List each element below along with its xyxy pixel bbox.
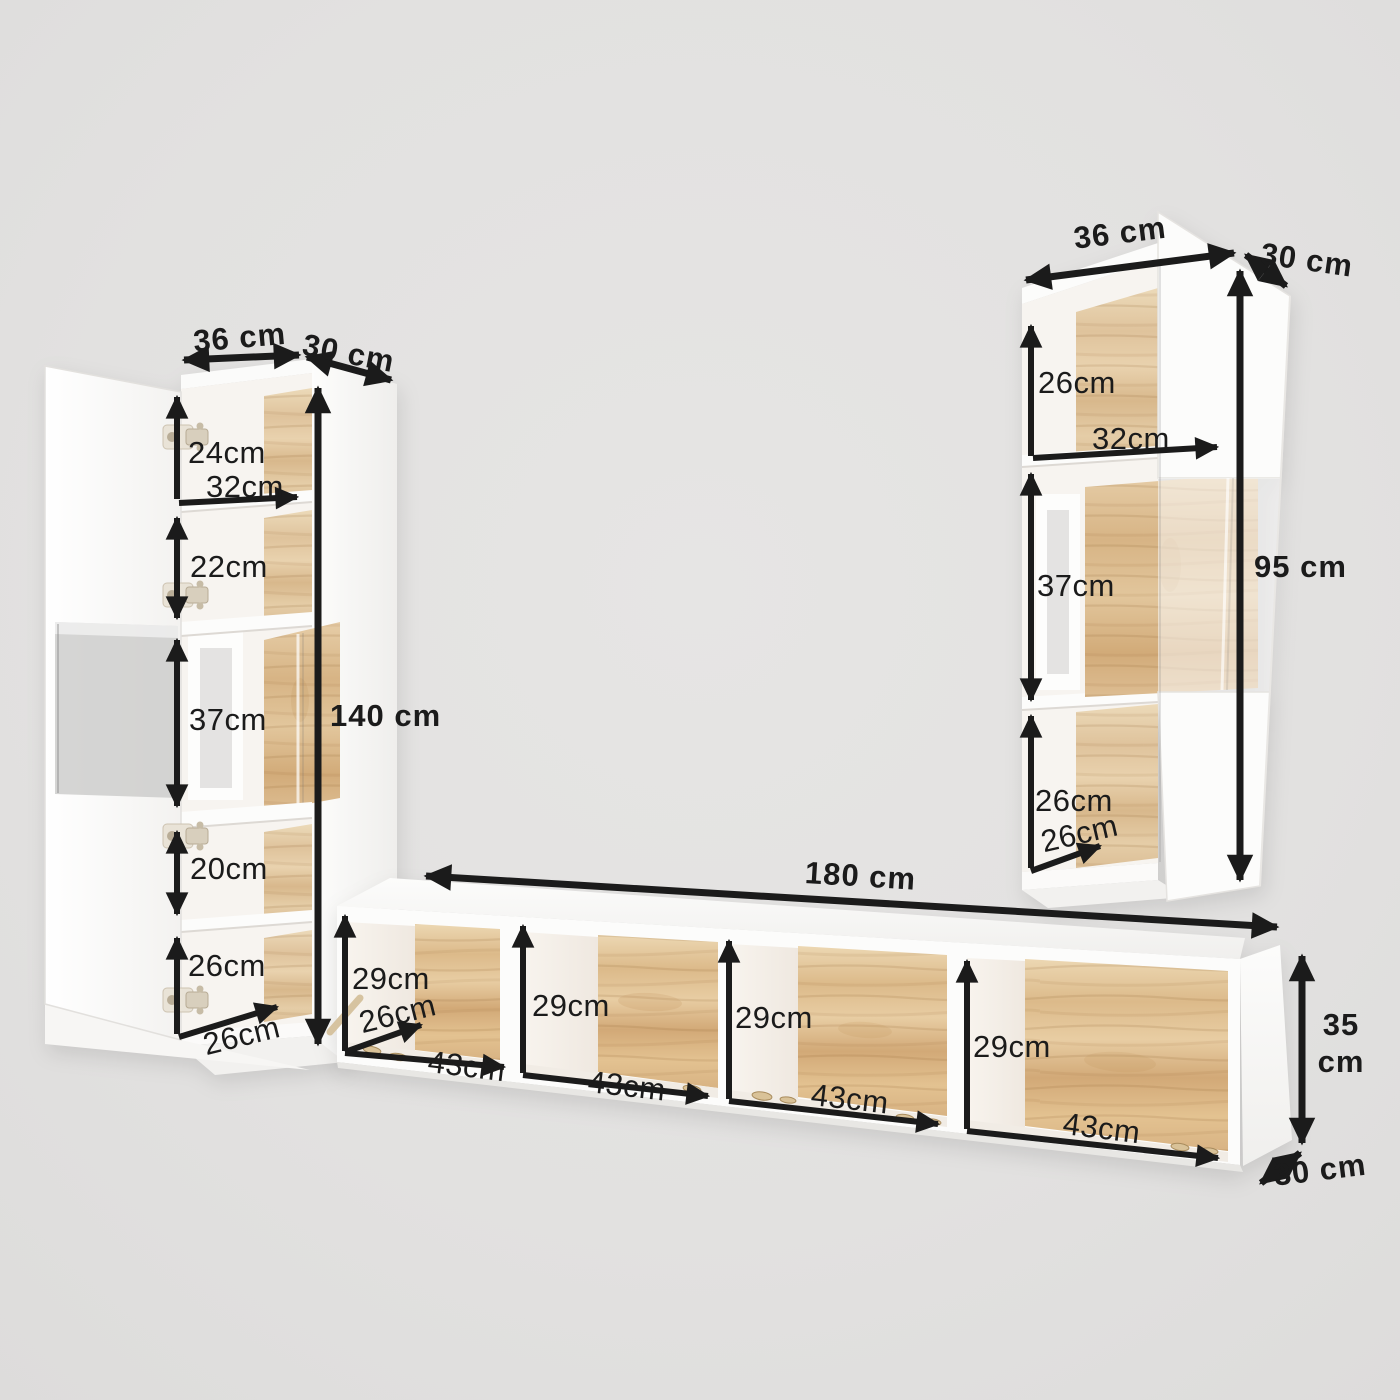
left-shelf-3-dimension: 37cm xyxy=(189,704,267,737)
door-hinge xyxy=(163,822,208,851)
wood-knot xyxy=(291,678,309,722)
left-inner-width-dimension: 32cm xyxy=(206,471,284,504)
door-hinge xyxy=(163,986,208,1015)
left-shelf-1-dimension: 24cm xyxy=(188,437,266,470)
left-cabinet-door-glass xyxy=(55,622,178,798)
left-shelf-4-dimension: 20cm xyxy=(190,853,268,886)
right-shelf-2-dimension: 37cm xyxy=(1037,570,1115,603)
tv-comp3-height-dimension: 29cm xyxy=(735,1002,813,1035)
left-cabinet-height-dimension: 140 cm xyxy=(330,700,441,733)
right-cabinet-height-dimension: 95 cm xyxy=(1254,551,1347,584)
tv-height-dimension-unit: cm xyxy=(1318,1044,1365,1079)
right-shelf-1-dimension: 26cm xyxy=(1038,367,1116,400)
tv-stand-right-end xyxy=(1240,945,1292,1166)
right-inner-width-dimension: 32cm xyxy=(1092,423,1170,456)
tv-height-dimension-value: 35 xyxy=(1323,1007,1359,1042)
scene-drawing xyxy=(0,0,1400,1400)
tv-height-dimension: 35 cm xyxy=(1308,1006,1374,1080)
left-shelf-2-dimension: 22cm xyxy=(190,551,268,584)
tv-comp2-height-dimension: 29cm xyxy=(532,990,610,1023)
right-cabinet-door-glass xyxy=(1158,478,1281,692)
left-shelf-5-dimension: 26cm xyxy=(188,950,266,983)
furniture-dimension-diagram: 36 cm 30 cm 140 cm 24cm 32cm 22cm 37cm 2… xyxy=(0,0,1400,1400)
right-cabinet-door-lower xyxy=(1158,692,1270,901)
tv-width-dimension: 180 cm xyxy=(804,857,917,896)
door-hinge xyxy=(163,581,208,610)
tv-comp4-height-dimension: 29cm xyxy=(973,1031,1051,1064)
